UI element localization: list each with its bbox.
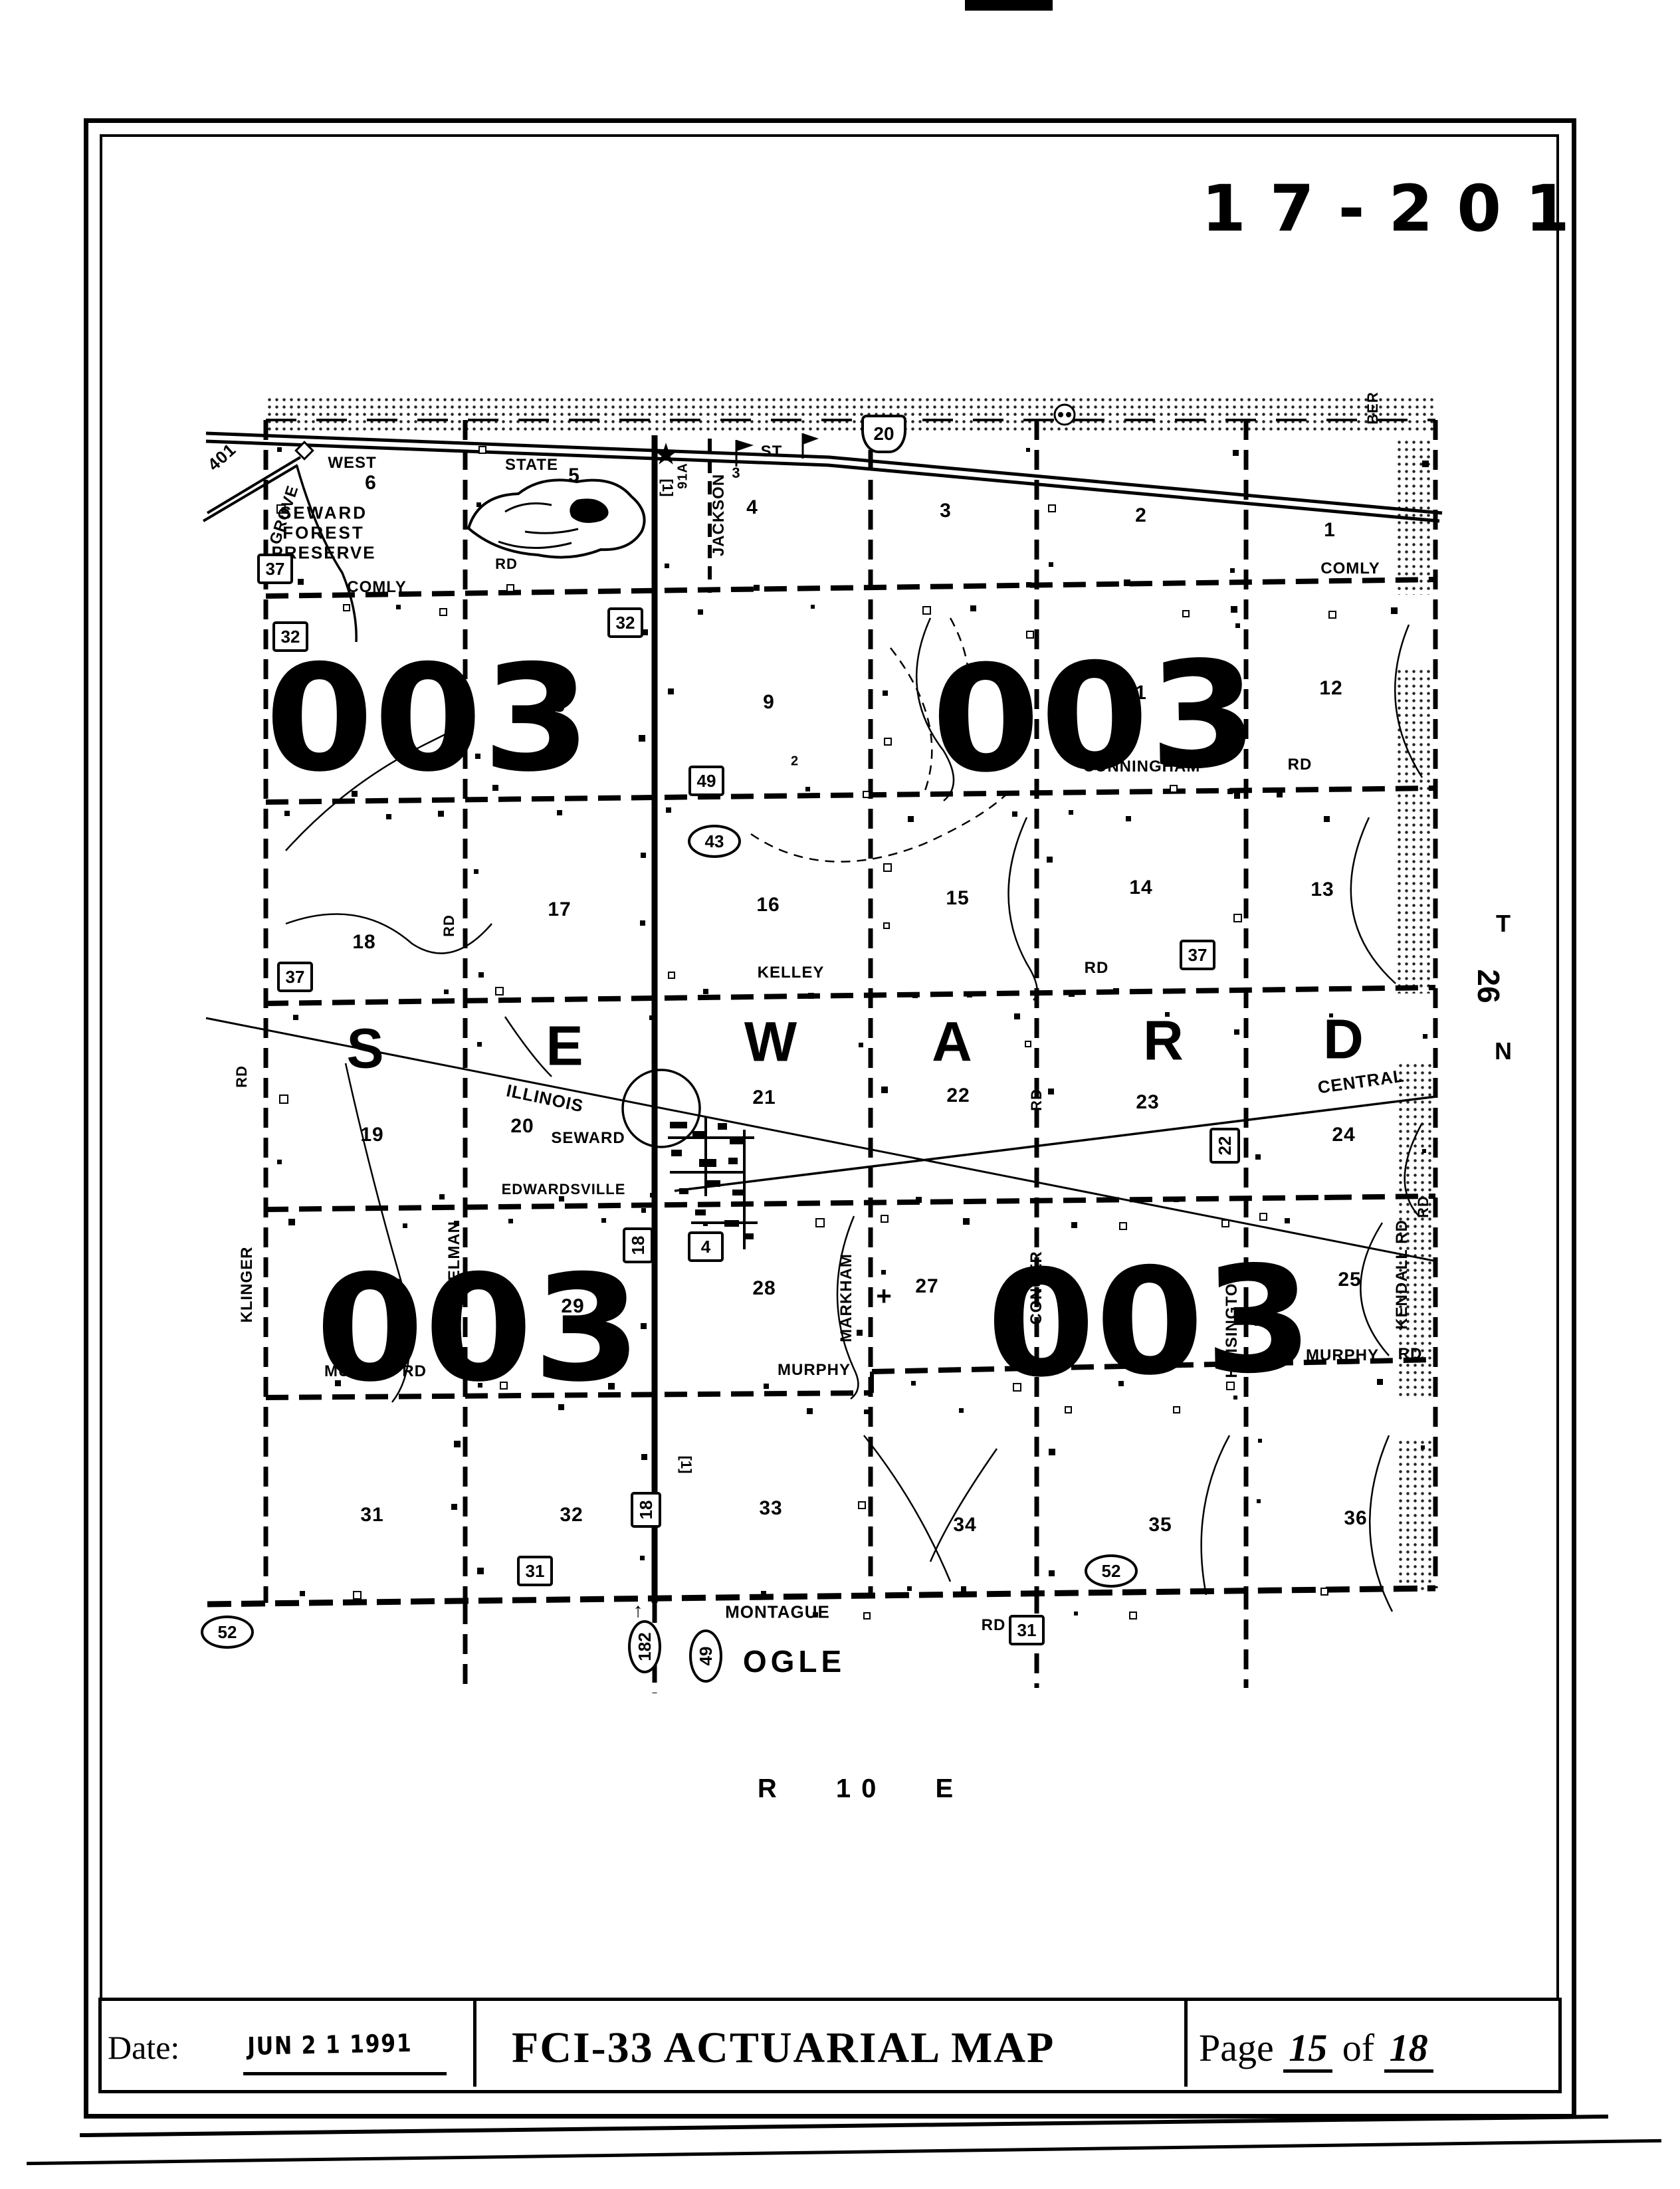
farmstead-dot — [703, 1221, 708, 1226]
section-25: 25 — [1338, 1269, 1361, 1291]
road-rd-v1: RD — [233, 1065, 251, 1088]
farmstead-dot — [293, 1015, 298, 1020]
farmstead-dot — [970, 605, 976, 611]
farmstead-dot — [1113, 988, 1119, 994]
farmstead-dot — [1324, 1195, 1330, 1200]
road-edwardsville: EDWARDSVILLE — [502, 1181, 626, 1198]
route-shield-31: 31 — [1009, 1615, 1045, 1645]
bracket-marker: [1] — [677, 1456, 694, 1474]
farmstead-dot — [1182, 610, 1190, 617]
farmstead-dot — [859, 1043, 863, 1047]
section-4: 4 — [746, 496, 758, 519]
farmstead-dot — [967, 992, 972, 997]
page-indicator: Page 15 of 18 — [1199, 2026, 1433, 2070]
section-21: 21 — [752, 1087, 776, 1109]
farmstead-dot — [881, 1087, 888, 1093]
section-28: 28 — [752, 1277, 776, 1300]
farmstead-dot — [881, 1215, 889, 1223]
farmstead-dot — [863, 791, 870, 798]
farmstead-dot — [1233, 914, 1242, 922]
farmstead-dot — [1012, 811, 1017, 817]
section-6: 6 — [365, 472, 377, 494]
farmstead-dot — [495, 987, 504, 995]
township-letter-R: R — [1143, 1009, 1184, 1073]
farmstead-dot — [884, 738, 892, 746]
farmstead-dot — [864, 1409, 869, 1414]
section-16: 16 — [756, 894, 780, 916]
farmstead-dot — [641, 1208, 646, 1213]
zone-stamp-003: 003 — [986, 1246, 1314, 1398]
farmstead-dot — [641, 1454, 647, 1460]
section-9: 9 — [763, 691, 775, 714]
farmstead-dot — [1025, 1041, 1031, 1047]
route-shield-49: 49 — [688, 766, 724, 796]
township-letter-E: E — [546, 1014, 583, 1079]
road-cunningham-rd: RD — [1288, 756, 1312, 774]
farmstead-dot — [640, 920, 645, 926]
farmstead-dot — [508, 1219, 513, 1223]
farmstead-dot — [881, 1270, 886, 1275]
bracket-marker: [1] — [659, 479, 676, 497]
road-montague: MONTAGUE — [725, 1602, 830, 1623]
church-cross: + — [876, 1282, 891, 1312]
route-shield-32: 32 — [607, 607, 643, 638]
farmstead-dot — [883, 863, 892, 872]
farmstead-dot — [1014, 1013, 1020, 1019]
farmstead-dot — [1049, 562, 1053, 567]
farmstead-dot — [477, 1042, 482, 1047]
farmstead-dot — [641, 853, 646, 858]
road-klinger: KLINGER — [238, 1247, 257, 1323]
route-shield-31: 31 — [517, 1556, 553, 1586]
road-comly-right: COMLY — [1320, 560, 1380, 578]
route-shield-37: 37 — [1180, 940, 1215, 970]
farmstead-dot — [858, 1501, 866, 1509]
zone-stamp-003: 003 — [316, 1256, 642, 1403]
farmstead-dot — [961, 1586, 966, 1592]
marker-2: 2 — [791, 754, 799, 770]
road-west: WEST — [328, 454, 376, 472]
section-27: 27 — [915, 1275, 938, 1298]
section-5: 5 — [568, 465, 580, 487]
township-letter-A: A — [932, 1010, 973, 1075]
route-shield-37: 37 — [257, 554, 293, 584]
road-ber: BER — [1364, 391, 1382, 424]
farmstead-dot — [277, 1160, 282, 1164]
farmstead-dot — [1377, 1379, 1383, 1385]
farmstead-dot — [1126, 816, 1131, 821]
farmstead-dot — [1233, 450, 1239, 456]
farmstead-dot — [444, 990, 449, 994]
farmstead-dot — [963, 1218, 970, 1225]
road-jackson: JACKSON — [710, 474, 728, 556]
farmstead-dot — [439, 1194, 445, 1199]
section-34: 34 — [953, 1514, 976, 1536]
farmstead-dot — [668, 688, 674, 694]
farmstead-dot — [911, 1381, 916, 1386]
farmstead-dot — [478, 446, 486, 454]
road-comly-left: COMLY — [347, 578, 406, 597]
farmstead-dot — [601, 1218, 606, 1223]
farmstead-dot — [1328, 611, 1336, 619]
farmstead-dot — [1258, 1439, 1262, 1443]
section-32: 32 — [560, 1504, 583, 1526]
road-markham: MARKHAM — [837, 1253, 856, 1342]
zone-stamp-003: 003 — [930, 641, 1259, 793]
route-shield-49: 49 — [689, 1629, 722, 1683]
farmstead-dot — [912, 993, 918, 998]
farmstead-dot — [1124, 579, 1130, 586]
farmstead-dot — [808, 993, 814, 999]
star-marker: ★ — [654, 439, 678, 470]
farmstead-dot — [922, 606, 931, 615]
footer-divider — [473, 1998, 476, 2087]
section-15: 15 — [946, 887, 969, 910]
section-2: 2 — [1135, 504, 1147, 527]
farmstead-dot — [907, 1586, 912, 1591]
town-seward: SEWARD — [551, 1129, 625, 1148]
farmstead-dot — [298, 579, 304, 585]
farmstead-dot — [1423, 1034, 1427, 1039]
date-underline — [243, 2072, 447, 2075]
farmstead-dot — [703, 989, 708, 994]
page-label: Page — [1199, 2026, 1274, 2069]
section-12: 12 — [1319, 677, 1342, 700]
route-shield-52: 52 — [1085, 1554, 1138, 1588]
township-letter-W: W — [744, 1010, 797, 1075]
section-24: 24 — [1332, 1124, 1355, 1146]
route-shield-43: 43 — [688, 825, 741, 858]
farmstead-dot — [883, 922, 890, 929]
farmstead-dot — [1231, 606, 1237, 613]
map-linework — [0, 0, 1680, 2189]
farmstead-dot — [1285, 1218, 1290, 1223]
farmstead-dot — [1026, 448, 1030, 452]
marker-3: 3 — [732, 465, 740, 482]
farmstead-dot — [908, 816, 914, 822]
section-33: 33 — [759, 1497, 782, 1520]
road-rd-v2: RD — [441, 914, 458, 937]
route-shield-4: 4 — [688, 1231, 724, 1262]
route-shield-18: 18 — [631, 1492, 661, 1528]
section-22: 22 — [946, 1085, 970, 1107]
section-1: 1 — [1324, 519, 1336, 542]
farmstead-dot — [1320, 1588, 1328, 1596]
farmstead-dot — [650, 1193, 655, 1198]
farmstead-dot — [1277, 791, 1283, 797]
farmstead-dot — [665, 564, 669, 568]
farmstead-dot — [396, 605, 401, 609]
farmstead-dot — [1049, 1570, 1055, 1576]
farmstead-dot — [1071, 1222, 1077, 1228]
farmstead-dot — [1047, 857, 1053, 863]
farmstead-dot — [403, 1223, 407, 1228]
farmstead-dot — [1235, 623, 1240, 628]
route-shield-52: 52 — [201, 1616, 254, 1649]
road-rd-v3: RD — [1028, 1089, 1045, 1111]
farmstead-dot — [1422, 461, 1429, 467]
route-shield-22: 22 — [1209, 1128, 1240, 1164]
section-17: 17 — [548, 898, 571, 921]
farmstead-dot — [764, 1384, 769, 1389]
farmstead-dot — [474, 869, 478, 874]
section-19: 19 — [360, 1124, 383, 1146]
farmstead-dot — [1255, 1154, 1261, 1160]
farmstead-dot — [557, 810, 562, 815]
farmstead-dot — [666, 807, 671, 813]
farmstead-dot — [1174, 1197, 1179, 1202]
farmstead-dot — [1230, 568, 1235, 573]
farmstead-dot — [451, 1504, 457, 1510]
road-state: STATE — [505, 456, 558, 474]
farmstead-dot — [649, 1015, 654, 1020]
farmstead-dot — [807, 1408, 813, 1414]
farmstead-dot — [477, 1568, 484, 1574]
section-35: 35 — [1148, 1514, 1172, 1536]
zone-stamp-003: 003 — [265, 646, 591, 793]
road-montague-rd: RD — [982, 1616, 1006, 1635]
farmstead-dot — [476, 502, 481, 507]
farmstead-dot — [353, 1591, 362, 1600]
road-kelley: KELLEY — [758, 964, 825, 982]
road-murphy-right-rd: RD — [1398, 1345, 1423, 1364]
route-shield-182: 182 — [628, 1620, 661, 1673]
farmstead-dot — [454, 1441, 461, 1447]
farmstead-dot — [811, 605, 815, 609]
road-state-st: ST — [761, 443, 783, 461]
farmstead-dot — [761, 1591, 766, 1596]
farmstead-dot — [1391, 607, 1398, 614]
farmstead-dot — [1324, 816, 1330, 822]
date-label: Date: — [108, 2028, 179, 2067]
farmstead-dot — [815, 1218, 825, 1227]
farmstead-dot — [916, 1197, 922, 1203]
of-label: of — [1342, 2026, 1374, 2069]
township-letter-D: D — [1323, 1007, 1364, 1072]
farmstead-dot — [698, 609, 703, 615]
farmstead-dot — [277, 447, 282, 452]
page-number: 15 — [1283, 2026, 1332, 2073]
farmstead-dot — [300, 1591, 305, 1596]
road-rd-v4: RD — [1415, 1196, 1432, 1218]
farmstead-dot — [639, 735, 645, 742]
page-total: 18 — [1384, 2026, 1433, 2073]
farmstead-dot — [1049, 1449, 1055, 1455]
farmstead-dot — [1048, 504, 1056, 512]
section-36: 36 — [1344, 1507, 1367, 1530]
farmstead-dot — [754, 585, 760, 591]
farmstead-dot — [959, 1408, 964, 1413]
farmstead-dot — [1422, 1149, 1426, 1153]
section-23: 23 — [1136, 1091, 1159, 1114]
route-shield-20: 20 — [861, 415, 906, 453]
farmstead-dot — [1257, 1499, 1261, 1503]
farmstead-dot — [1074, 1612, 1078, 1616]
farmstead-dot — [1129, 1612, 1137, 1619]
farmstead-dot — [279, 1094, 288, 1104]
scanned-actuarial-map-page: 17-201 T 26 N R 10 E — [0, 0, 1680, 2189]
farmstead-dot — [288, 1219, 295, 1225]
footer-divider — [1184, 1998, 1188, 2087]
farmstead-dot — [386, 814, 391, 819]
farmstead-dot — [478, 972, 484, 978]
road-state-rd: RD — [495, 556, 518, 573]
farmstead-dot — [1026, 582, 1031, 587]
document-title: FCI-33 ACTUARIAL MAP — [512, 2023, 1055, 2073]
farmstead-dot — [284, 811, 290, 816]
farmstead-dot — [863, 1612, 871, 1619]
route-shield-37: 37 — [277, 962, 313, 992]
farmstead-dot — [640, 1556, 645, 1560]
farmstead-dot — [438, 811, 444, 817]
farmstead-dot — [1069, 991, 1075, 997]
farmstead-dot — [1069, 810, 1073, 815]
road-kendall: KENDALL RD — [1393, 1219, 1412, 1330]
section-31: 31 — [360, 1504, 383, 1526]
farmstead-dot — [1421, 1445, 1425, 1449]
road-kelley-rd: RD — [1085, 959, 1109, 978]
section-14: 14 — [1129, 877, 1152, 899]
farmstead-dot — [1048, 1089, 1054, 1094]
farmstead-dot — [883, 690, 888, 696]
farmstead-dot — [668, 972, 675, 979]
north-arrow: ↑ — [633, 1600, 643, 1622]
farmstead-dot — [1221, 1219, 1229, 1227]
date-stamp: JUN 2 1 1991 — [247, 2029, 413, 2061]
section-3: 3 — [940, 500, 952, 522]
road-murphy-right: MURPHY — [1306, 1346, 1379, 1365]
county-ogle: OGLE — [743, 1643, 845, 1679]
forest-line2: FOREST — [282, 523, 364, 544]
section-20: 20 — [510, 1115, 534, 1138]
forest-line1: SEWARD — [280, 503, 367, 524]
farmstead-dot — [857, 1330, 863, 1336]
farmstead-dot — [343, 604, 350, 611]
farmstead-dot — [506, 584, 514, 592]
road-murphy-mid: MURPHY — [778, 1361, 851, 1380]
farmstead-dot — [1119, 1222, 1127, 1230]
farmstead-dot — [805, 787, 810, 791]
section-18: 18 — [352, 931, 375, 954]
section-13: 13 — [1311, 879, 1334, 901]
farmstead-dot — [439, 608, 447, 616]
township-letter-S: S — [346, 1017, 384, 1081]
farmstead-dot — [1259, 1213, 1267, 1221]
farmstead-dot — [1234, 1029, 1239, 1035]
